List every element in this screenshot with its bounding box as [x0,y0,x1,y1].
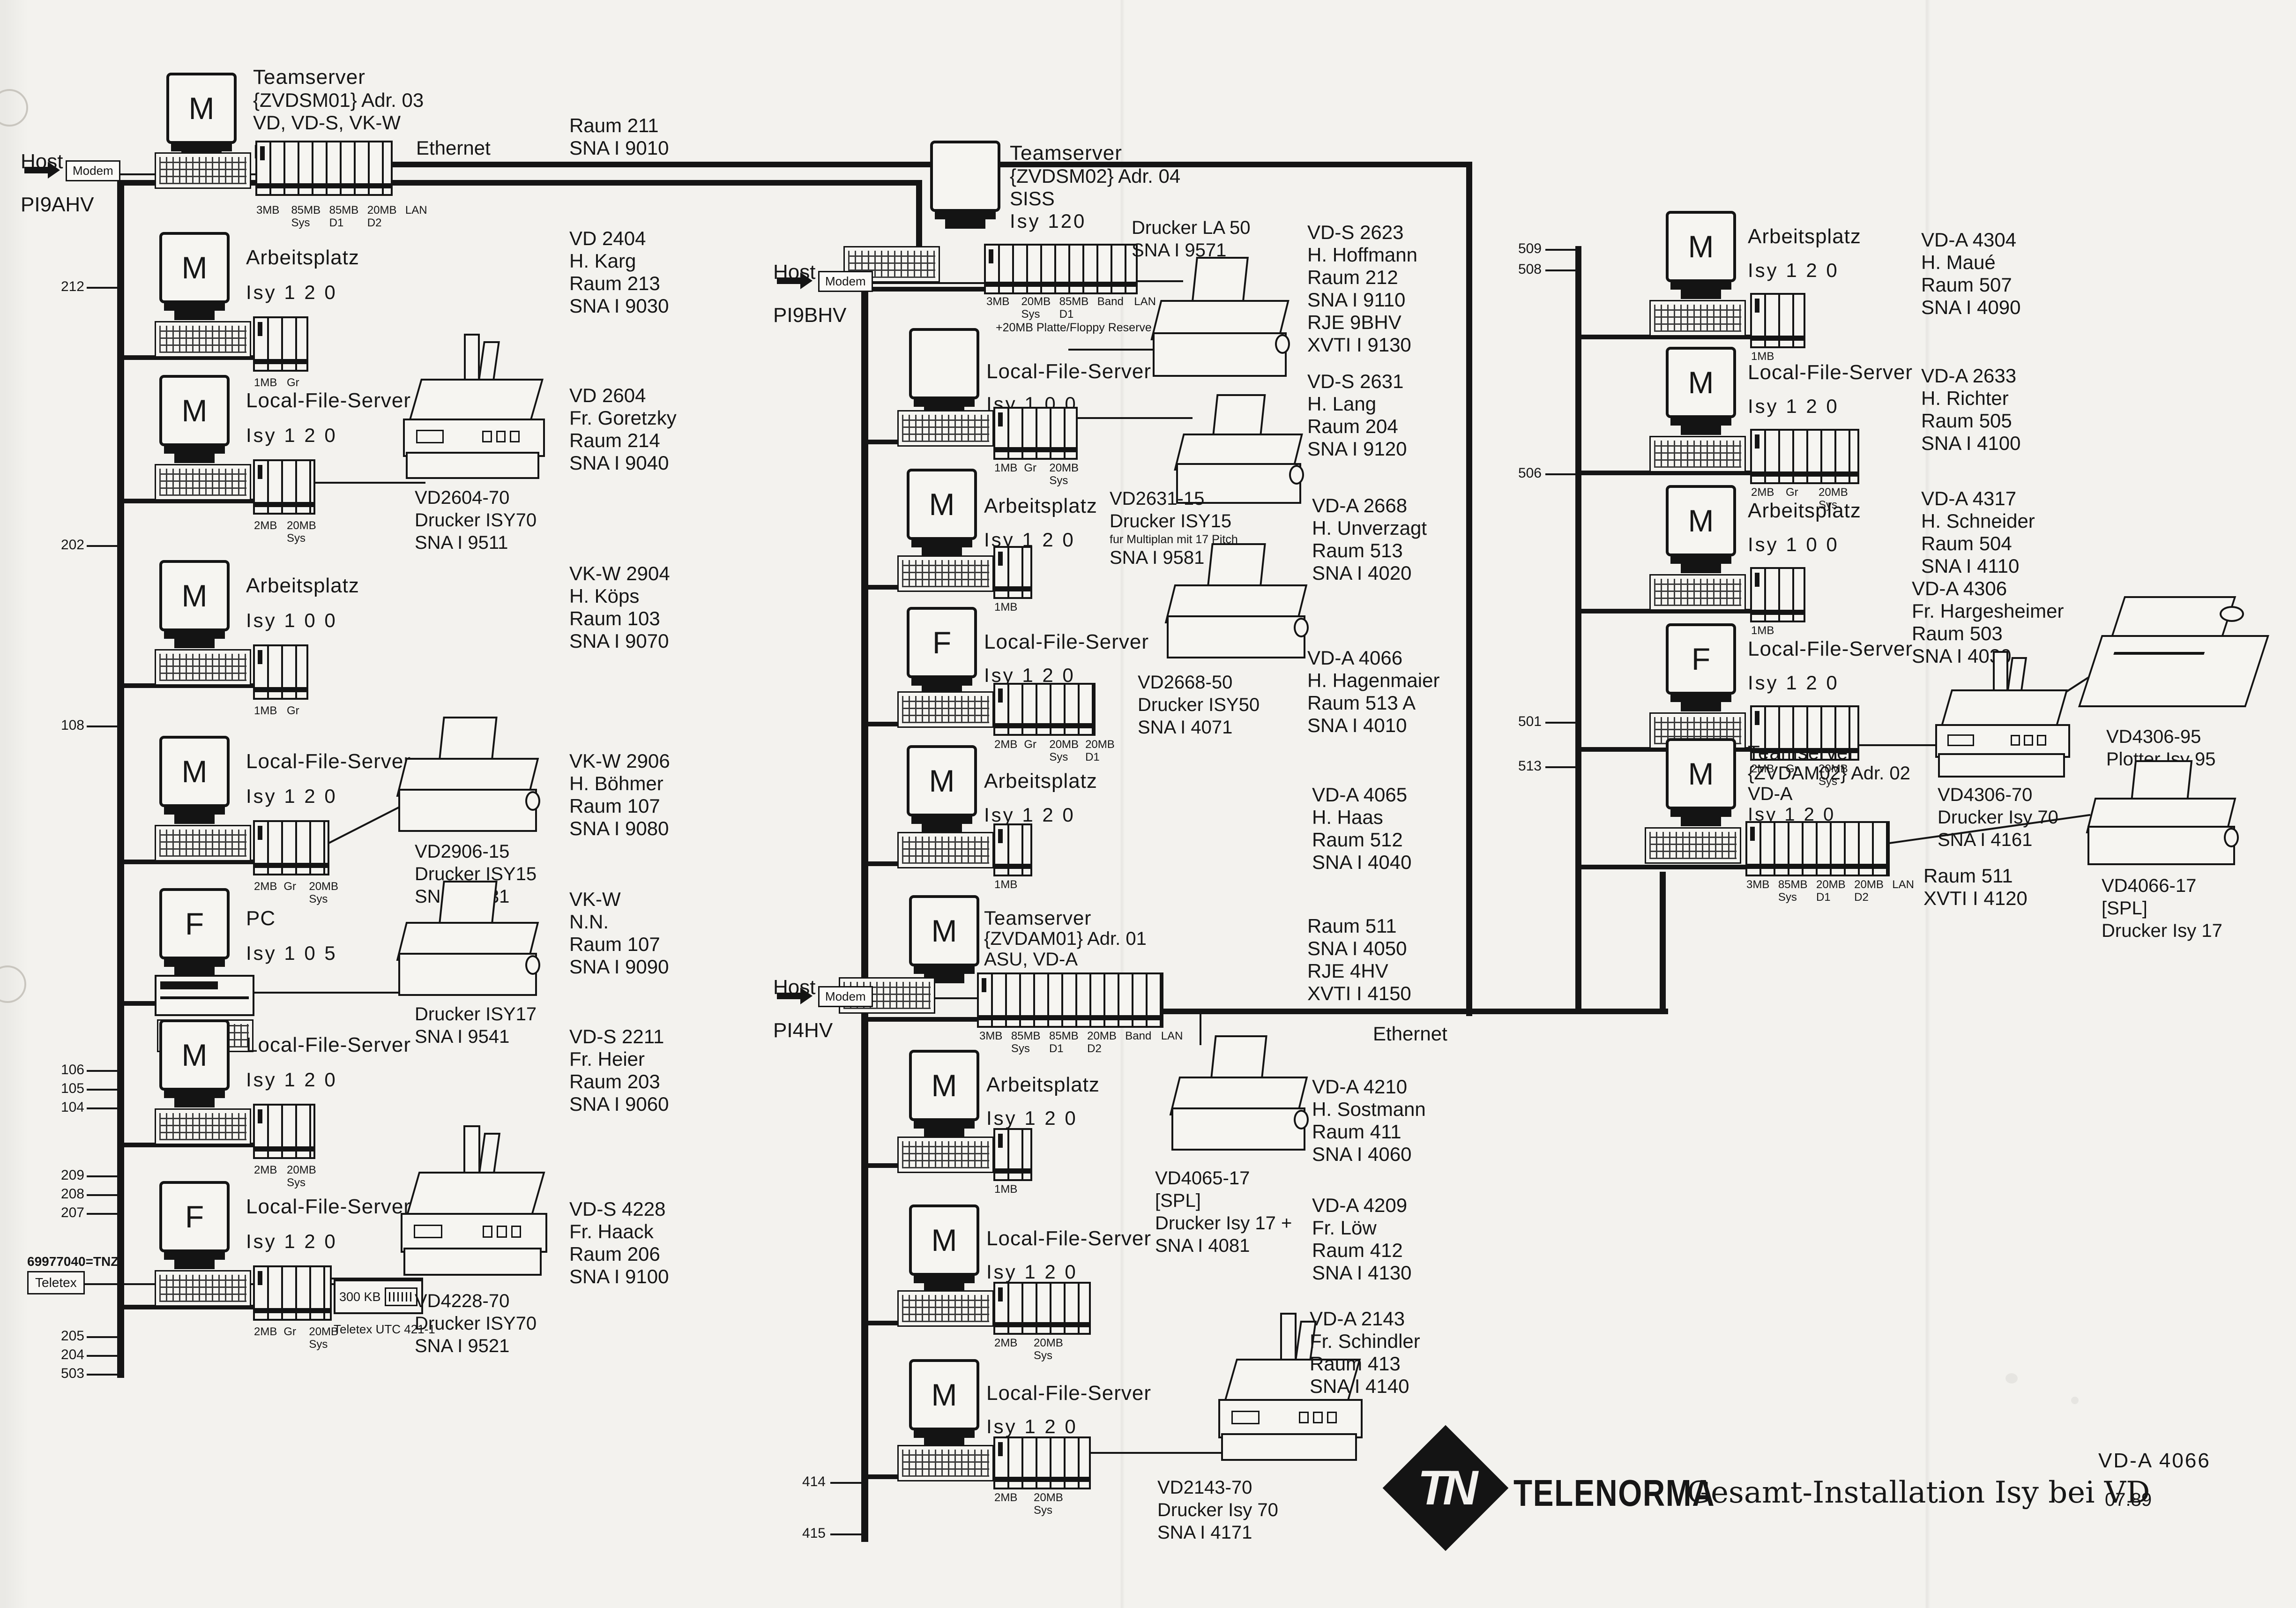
server-unit-icon [1750,429,1859,484]
slot-labels: 3MB 85MBSys 20MBD1 20MBD2 LAN [1746,878,1925,904]
printer-label: VD4066-17[SPL]Drucker Isy 17 [2102,875,2222,942]
printer-label: VD4228-70Drucker ISY70SNA I 9521 [415,1290,537,1357]
stub-tick [87,1070,117,1072]
info-block: VD-A 4304H. MauéRaum 507SNA I 4090 [1921,229,2020,319]
isy-config: Isy 1 2 0 [246,424,337,447]
screen-letter: M [932,1377,957,1413]
stub-label: 509 [1495,241,1542,257]
stub-label: 209 [37,1167,84,1183]
slot-labels: 1MBGr [254,376,320,389]
screen-letter: M [182,250,208,285]
monitor-icon: M [907,745,977,833]
stub-label: 415 [779,1526,826,1541]
stub-tick [1545,722,1575,724]
node-label: Teamserver [984,907,1091,929]
monitor-icon: M [909,1050,979,1138]
stub-label: 105 [37,1081,84,1097]
doc-number: VD-A 4066 [2098,1449,2211,1473]
stub-tick [87,545,117,547]
stub-tick [87,1213,117,1215]
stub-label: 508 [1495,262,1542,277]
monitor-icon: M [159,232,230,320]
printer-line [1855,744,1937,746]
host-pi9ahv: Host Modem PI9AHV [21,150,94,217]
teamserver2-drop-line [1660,872,1666,1012]
screen-letter: M [929,763,955,799]
monitor-icon: M [1666,211,1736,299]
node-label: Local-File-Server [986,1382,1151,1405]
slot-labels: 3MB 20MBSys 85MBD1 Band LAN [986,295,1167,321]
server-unit-icon [253,316,308,372]
info-block: VD 2604Fr. GoretzkyRaum 214SNA I 9040 [569,384,677,474]
host-arrow-icon [777,277,801,284]
stub-label: 205 [37,1328,84,1344]
slot-labels: 2MBGr20MBSys [254,880,345,905]
doc-date: 07.89 [2105,1489,2152,1511]
keyboard-icon [1649,574,1746,611]
stub-tick [87,1194,117,1196]
server-unit-icon [253,459,315,515]
teletex-connector-icon [385,1287,417,1306]
printer-label: VD4306-70Drucker Isy 70SNA I 4161 [1938,784,2058,851]
screen-letter: M [932,913,957,949]
connector-line [865,287,987,292]
keyboard-icon [1649,300,1746,337]
printer-icon [1167,558,1307,661]
host-pi9bhv: Host Modem PI9BHV [773,261,847,327]
printer-label: VD4065-17[SPL]Drucker Isy 17 +SNA I 4081 [1155,1167,1292,1257]
telenorma-logo: TN [1383,1425,1509,1551]
middle-bus [861,286,868,1542]
server-unit-icon [993,823,1032,876]
server-unit-icon [993,1282,1091,1335]
paper-smudge [2071,1397,2079,1404]
monitor-icon: M [159,560,230,648]
screen-letter: M [1688,365,1714,400]
server-unit-icon [993,407,1078,460]
stub-label: 506 [1495,465,1542,481]
stub-tick [87,1374,117,1376]
isy-config: Isy 1 2 0 [984,804,1075,826]
monitor-icon: M [1666,485,1736,573]
isy-config: Isy 1 2 0 [1748,259,1839,282]
isy-config: Isy 1 0 0 [1748,533,1839,556]
screen-letter: M [932,1222,957,1258]
printer-icon [398,895,539,998]
node-label: PC [246,907,276,930]
keyboard-icon [155,825,251,861]
node-label: Local-File-Server [246,750,411,773]
server-unit-icon [993,1436,1091,1489]
slot-labels: 1MB [1751,624,1784,637]
isy-config: Isy 1 2 0 [246,785,337,808]
stub-label: 513 [1495,758,1542,774]
info-block: VK-W 2904H. KöpsRaum 103SNA I 9070 [569,562,670,652]
keyboard-icon [155,649,251,686]
monitor-icon: M [166,73,237,161]
isy-config: Isy 1 2 0 [246,281,337,304]
monitor-icon: M [159,375,230,463]
stub-label: 501 [1495,714,1542,730]
stub-label: 207 [37,1205,84,1221]
node-id: {ZVDAM01} Adr. 01 [984,928,1147,950]
info-block: VD-S 2211Fr. HeierRaum 203SNA I 9060 [569,1025,669,1115]
server-unit-icon [253,644,308,700]
stub-tick [1545,249,1575,251]
node-label: Arbeitsplatz [246,246,359,269]
node-label: Teamserver [1010,142,1122,165]
ethernet-bottom-line [1139,1009,1668,1014]
monitor-icon: M [909,1359,979,1447]
ethernet-top-line [361,162,1472,167]
info-block: VD-A 2633H. RichterRaum 505SNA I 4100 [1921,365,2020,455]
server-unit-icon [255,141,393,196]
node-label: Arbeitsplatz [984,770,1097,793]
stub-tick [1545,269,1575,271]
isy-config: Isy 1 2 0 [246,1069,337,1091]
screen-letter: M [182,578,208,613]
node-id: {ZVDAM02} Adr. 02 [1748,763,1910,784]
ethernet-drop-line [916,180,922,250]
stub-label: 208 [37,1186,84,1202]
printer-icon [401,1148,544,1277]
stub-label: 204 [37,1347,84,1363]
printer-line [313,482,425,484]
connector-line [120,1001,158,1006]
node-label: Local-File-Server [984,630,1149,654]
ethernet-down-line [1466,162,1472,1016]
printer-line [1200,1012,1201,1045]
node-label: Local-File-Server [246,1033,411,1057]
monitor-icon: M [1666,347,1736,435]
stub-tick [1545,766,1575,768]
keyboard-icon [897,1290,994,1327]
server-unit-icon [253,820,329,875]
paper-smudge [2005,1373,2018,1384]
info-block: VD-A 4209Fr. LöwRaum 412SNA I 4130 [1312,1194,1411,1284]
slot-labels: 1MBGr20MBSys [994,462,1085,487]
isy-config: Isy 1 2 0 [246,1230,337,1253]
modem-box: Modem [66,160,120,181]
screen-letter: M [1688,503,1714,538]
hole-punch [0,89,28,127]
slot-labels: 1MB [994,1183,1027,1196]
screen-letter: F [185,1199,204,1234]
node-label: Arbeitsplatz [984,494,1097,518]
keyboard-icon [897,691,994,728]
stub-label: 108 [37,718,84,733]
slot-labels: 2MB20MBSys [254,519,323,545]
keyboard-icon [155,1108,251,1145]
host-name: PI4HV [773,1019,833,1042]
stub-tick [87,1089,117,1091]
server-unit-icon [1745,821,1890,876]
keyboard-icon [897,410,994,447]
keyboard-icon [155,464,251,501]
printer-icon [2087,773,2237,867]
slot-labels: 2MB20MBSys [994,1337,1070,1362]
printer-label: VD2143-70Drucker Isy 70SNA I 4171 [1157,1476,1278,1544]
screen-letter: M [182,1037,208,1073]
node-orgs: VD, VD-S, VK-W [253,112,401,134]
plotter-icon [2090,596,2254,718]
host-pi4hv: Host Modem PI4HV [773,976,833,1042]
server-unit-icon [977,972,1163,1028]
screen-letter: M [1688,229,1714,264]
node-label: Local-File-Server [1748,361,1913,384]
stub-label: 212 [37,279,84,295]
info-block: VD-A 4317H. SchneiderRaum 504SNA I 4110 [1921,487,2035,577]
node-orgs: VD-A [1748,784,1793,805]
keyboard-icon [897,832,994,868]
info-block: VD-S 2623H. HoffmannRaum 212 SNA I 9110R… [1307,221,1417,356]
printer-icon [1153,272,1289,380]
server-unit-icon [1750,567,1805,622]
stub-label: 106 [37,1062,84,1078]
info-block: VD-S 4228Fr. HaackRaum 206SNA I 9100 [569,1198,669,1288]
isy-config: Isy 1 2 0 [1748,672,1839,694]
stub-label: 202 [37,537,84,553]
info-block: VD-A 2143Fr. SchindlerRaum 413SNA I 4140 [1310,1308,1420,1398]
host-arrow-icon [777,993,801,999]
stub-tick [830,1482,861,1484]
node-orgs: ASU, VD-A [984,949,1078,970]
screen-letter: F [1692,641,1710,677]
monitor-icon: F [907,607,977,695]
info-block: VD-S 2631H. LangRaum 204SNA I 9120 [1307,370,1407,460]
node-id: {ZVDSM01} Adr. 03 [253,89,424,112]
printer-icon [1935,670,2066,778]
node-orgs: SISS [1010,187,1055,210]
isy-config: Isy 1 2 0 [986,1261,1078,1283]
slot-labels: 1MB [994,878,1027,891]
monitor-icon: M [159,1019,230,1107]
isy-config: Isy 1 2 0 [1748,395,1839,418]
keyboard-icon [897,1137,994,1173]
info-block: VK-W 2906H. BöhmerRaum 107SNA I 9080 [569,750,670,840]
document-title: Gesamt-Installation Isy bei VD [1687,1475,2150,1510]
printer-icon [1171,1050,1307,1153]
printer-icon [398,731,539,834]
monitor-icon [930,141,1000,229]
stub-tick [87,1175,117,1177]
screen-letter: M [1688,756,1714,792]
node-label: Local-File-Server [246,1195,411,1219]
isy-config: Isy 120 [1010,210,1086,232]
screen-letter: F [932,625,951,660]
stub-label: 503 [37,1366,84,1382]
keyboard-icon [155,321,251,358]
stub-label: 104 [37,1099,84,1115]
teletex-box: Teletex [27,1271,85,1294]
node-label: Arbeitsplatz [986,1073,1100,1097]
teletex-id: 69977040=TNZ [27,1254,119,1269]
printer-line [1076,1452,1222,1454]
slot-labels: 3MB 85MBSys 85MBD1 20MBD2 LAN [256,204,438,229]
slot-labels: 2MBGr20MBSys [254,1325,345,1351]
monitor-icon [909,328,979,416]
hole-punch [0,965,26,1003]
stub-tick [830,1533,861,1535]
info-block: VK-WN.N.Raum 107SNA I 9090 [569,888,669,978]
node-label: Local-File-Server [986,1227,1151,1250]
teletex-module: 300 KB [334,1279,423,1314]
keyboard-icon [897,555,994,592]
slot-labels: 1MB [994,601,1027,613]
monitor-icon: M [159,736,230,824]
stub-label: 414 [779,1474,826,1490]
printer-label: Drucker LA 50SNA I 9571 [1132,217,1250,262]
connector-line [865,1017,980,1022]
stub-tick [87,725,117,727]
server-unit-icon [993,1128,1032,1181]
stub-tick [1545,473,1575,475]
pc-case-icon [155,975,254,1016]
info-block: VD-A 4210H. SostmannRaum 411SNA I 4060 [1312,1076,1426,1166]
monitor-icon: M [909,895,979,983]
monitor-icon: M [907,469,977,557]
server-unit-icon [253,1104,315,1159]
node-label: Arbeitsplatz [1748,225,1861,248]
host-arrow-icon [24,167,49,173]
isy-config: Isy 1 2 0 [986,1415,1078,1438]
monitor-icon: F [1666,623,1736,711]
node-label: Local-File-Server [986,360,1151,383]
host-name: PI9AHV [21,193,94,217]
keyboard-icon [1645,827,1741,864]
monitor-icon: F [159,888,230,976]
node-label: Teamserver [1748,741,1855,764]
diagram-canvas: 212 202 108 106 105 104 209 208 207 205 … [0,0,2296,1608]
ethernet-label: Ethernet [416,137,491,159]
slot-labels: 1MBGr [254,704,320,717]
screen-letter: M [189,90,215,126]
printer-label: Drucker ISY17SNA I 9541 [415,1003,537,1048]
info-block: VD-A 4306Fr. HargesheimerRaum 503SNA I 4… [1912,577,2064,667]
stub-tick [87,1355,117,1357]
slot-labels: 2MB20MBSys [254,1164,323,1189]
slot-labels: 2MBGr20MBSys20MBD1 [994,738,1121,763]
info-block: Raum 511SNA I 4050RJE 4HVXVTI I 4150 [1307,915,1411,1005]
screen-letter: M [929,486,955,522]
monitor-icon: M [1666,738,1736,826]
screen-letter: M [182,393,208,428]
stub-tick [87,1336,117,1338]
slot-extra-label: +20MB Platte/Floppy Reserve [996,321,1152,335]
host-name: PI9BHV [773,304,847,327]
connector-line [1581,865,1748,869]
stub-tick [87,1107,117,1109]
node-label: Teamserver [253,66,365,89]
node-id: {ZVDSM02} Adr. 04 [1010,165,1180,187]
node-label: Arbeitsplatz [1748,499,1861,523]
isy-config: Isy 1 2 0 [986,1107,1078,1129]
modem-box: Modem [818,271,873,292]
printer-icon [403,356,541,480]
keyboard-icon [1649,436,1746,472]
keyboard-icon [155,1270,251,1307]
monitor-icon: M [909,1204,979,1293]
server-unit-icon [993,546,1032,599]
keyboard-icon [155,152,251,189]
ethernet-label: Ethernet [1373,1023,1447,1045]
modem-box: Modem [818,986,873,1007]
server-unit-icon [993,683,1096,736]
slot-labels: 2MB20MBSys [994,1491,1070,1517]
brand-name: TELENORMA [1513,1472,1715,1515]
printer-label: VD2604-70Drucker ISY70SNA I 9511 [415,486,537,554]
info-block: Raum 211SNA I 9010 [569,114,669,159]
server-unit-icon [1750,293,1805,348]
screen-letter: F [185,906,204,942]
info-block: VD-A 2668H. UnverzagtRaum 513SNA I 4020 [1312,494,1427,584]
monitor-icon: F [159,1181,230,1269]
screen-letter: M [182,754,208,789]
slot-labels: 3MB 85MBSys 85MBD1 20MBD2 Band LAN [979,1030,1194,1055]
isy-config: Isy 1 0 0 [246,609,337,632]
isy-config: Isy 1 0 5 [246,942,337,965]
screen-letter: M [932,1068,957,1103]
node-label: Local-File-Server [1748,637,1913,661]
server-unit-icon [984,244,1138,294]
printer-label: VD2668-50Drucker ISY50SNA I 4071 [1138,671,1260,739]
stub-tick [87,287,117,289]
info-block: VD-A 4066H. HagenmaierRaum 513 ASNA I 40… [1307,647,1439,737]
node-label: Local-File-Server [246,389,411,412]
server-unit-icon [253,1265,332,1321]
info-block: Raum 511XVTI I 4120 [1923,865,2028,910]
info-block: VD-A 4065H. HaasRaum 512SNA I 4040 [1312,784,1411,874]
keyboard-icon [897,1445,994,1481]
right-bus [1575,246,1581,1014]
node-label: Arbeitsplatz [246,574,359,598]
info-block: VD 2404H. KargRaum 213SNA I 9030 [569,227,669,317]
